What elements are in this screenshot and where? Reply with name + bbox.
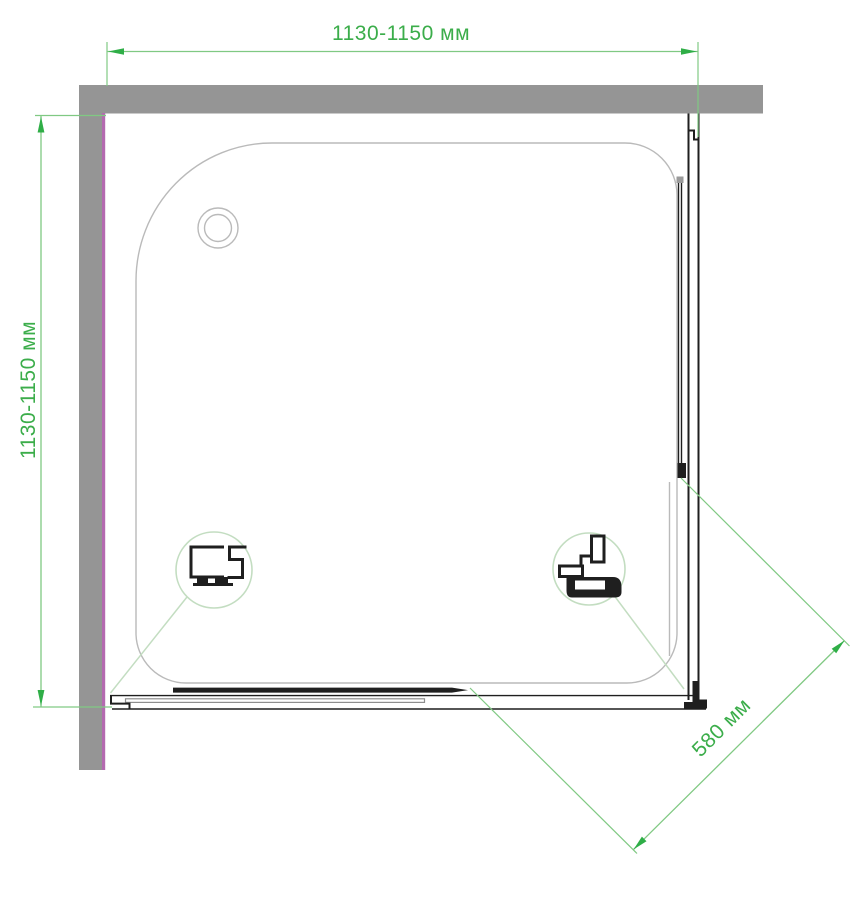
bottom-sliding-door-panel [173,688,468,693]
left-wall-inner-edge [102,113,105,770]
dimension-left-label: 1130-1150 мм [17,321,41,459]
drain-inner-circle [205,215,232,242]
corner-profile-icon-base-hollow [575,581,605,590]
right-callout-leader [613,594,684,689]
wall-profile-icon-foot-left [197,577,208,584]
right-door-top-cap [677,177,684,184]
right-top-profile-step [689,131,699,140]
left-wall [79,85,102,770]
right-door-handle-end [678,463,687,478]
drawing-canvas [0,0,862,916]
dimension-left-arrow-top [38,117,45,133]
dimension-left-arrow-bottom [38,690,45,706]
left-detail-circle [176,532,252,608]
dimension-diagonal-ext-lower [470,688,637,854]
dimension-diagonal-ext-upper [681,478,850,646]
shower-enclosure-drawing: 1130-1150 мм 1130-1150 мм 580 мм [0,0,862,916]
dimension-top-label: 1130-1150 мм [332,22,470,46]
wall-profile-icon-foot-right [215,577,228,584]
dimension-diagonal-line [634,641,845,850]
corner-bracket [684,681,707,709]
dimension-top-arrow-left [108,48,124,55]
dimension-top-arrow-right [681,48,697,55]
right-sliding-door-panel [679,183,682,463]
top-wall [79,85,763,114]
left-callout-leader [111,597,188,693]
bottom-door-track [126,699,425,703]
